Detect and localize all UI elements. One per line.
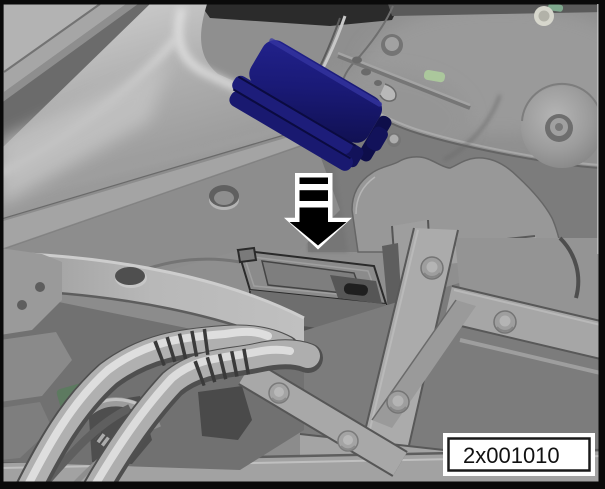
svg-text:2x001010: 2x001010 bbox=[463, 443, 560, 468]
